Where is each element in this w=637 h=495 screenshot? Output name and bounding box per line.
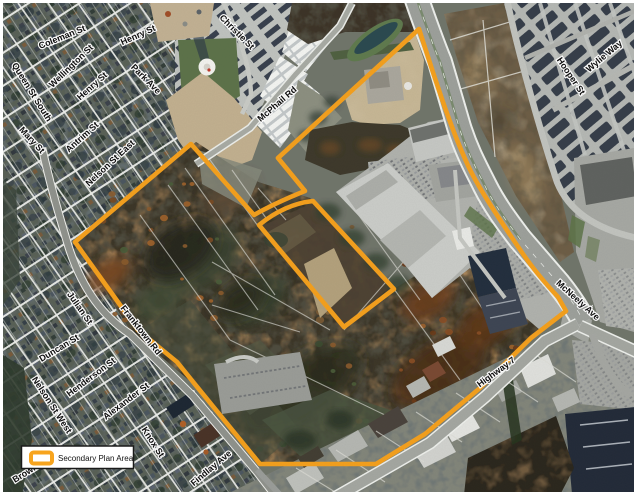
svg-text:Secondary Plan Area: Secondary Plan Area xyxy=(58,454,134,463)
